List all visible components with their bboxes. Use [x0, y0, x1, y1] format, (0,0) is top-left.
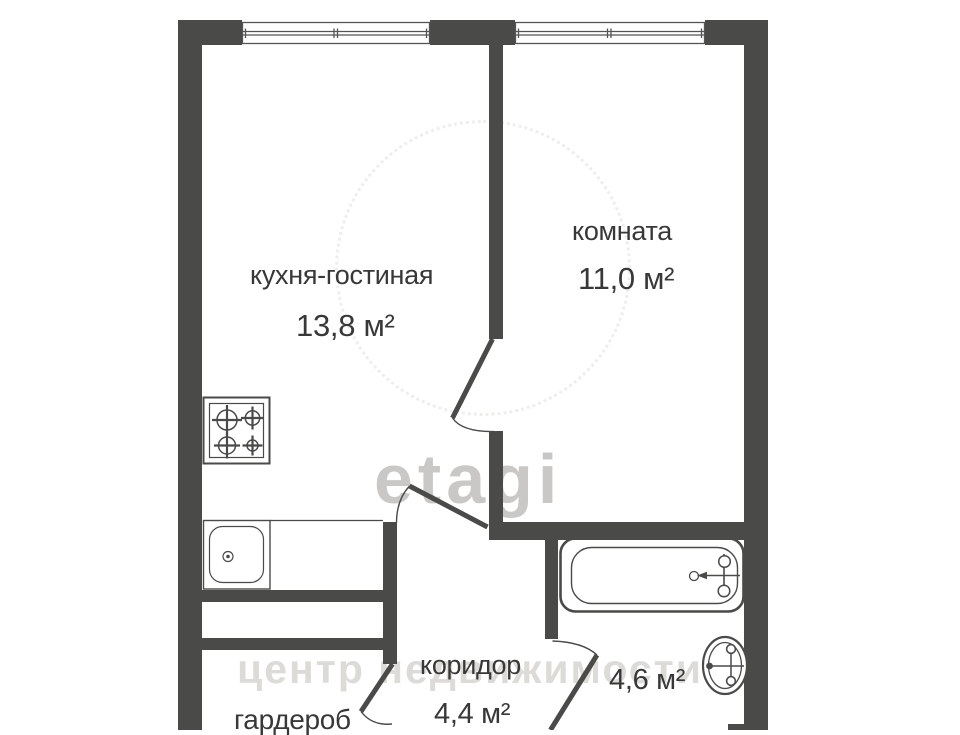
stove-icon [204, 398, 270, 464]
door-icon [551, 641, 598, 730]
floor-plan: etagi центр недвижимости [0, 0, 960, 730]
door-icon [397, 486, 488, 527]
toilet-icon [703, 637, 747, 694]
kitchen-living-area: 13,8 м² [296, 310, 394, 341]
room-label: комната [572, 218, 672, 245]
corridor-label: коридор [420, 652, 521, 679]
window-icon [516, 23, 705, 44]
fixtures-layer [0, 0, 960, 730]
bathtub-icon [561, 539, 744, 612]
sink-icon [204, 521, 384, 590]
door-icon [453, 339, 495, 432]
corridor-area: 4,4 м² [434, 700, 510, 729]
kitchen-living-label: кухня-гостиная [250, 262, 433, 289]
bathroom-area: 4,6 м² [609, 666, 685, 695]
window-icon [243, 23, 430, 44]
door-icon [361, 664, 393, 724]
room-area: 11,0 м² [578, 263, 674, 294]
